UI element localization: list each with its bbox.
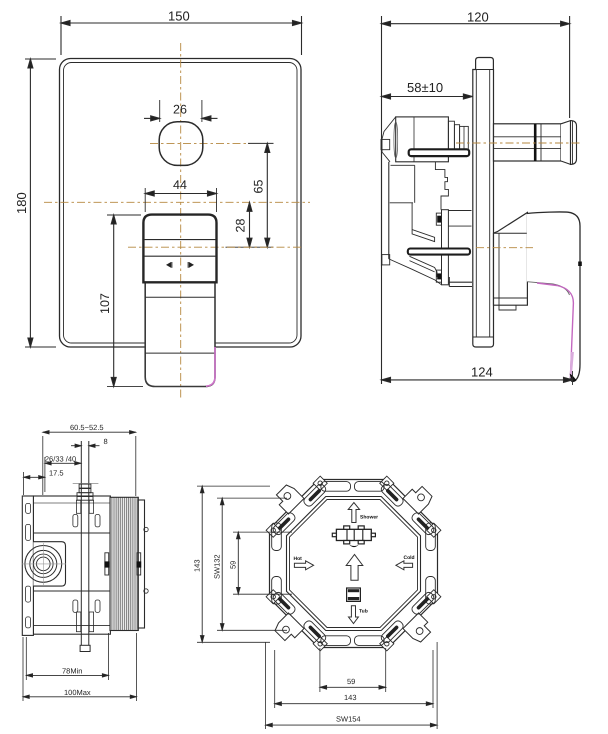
svg-text:60.5~52.5: 60.5~52.5 [70, 423, 104, 432]
svg-text:150: 150 [168, 9, 190, 24]
svg-text:28: 28 [234, 219, 248, 233]
svg-text:58±10: 58±10 [407, 80, 443, 95]
svg-text:100Max: 100Max [64, 688, 91, 697]
svg-text:120: 120 [467, 10, 489, 25]
svg-text:Cold: Cold [404, 555, 415, 561]
svg-text:143: 143 [344, 693, 357, 702]
svg-text:8: 8 [104, 437, 108, 446]
svg-text:Shower: Shower [360, 515, 378, 521]
svg-text:59: 59 [347, 677, 355, 686]
svg-text:26/33 /40: 26/33 /40 [45, 455, 76, 464]
svg-text:143: 143 [193, 559, 202, 572]
svg-text:180: 180 [14, 192, 29, 214]
svg-text:65: 65 [252, 180, 266, 194]
svg-text:124: 124 [471, 364, 493, 379]
svg-text:SW132: SW132 [213, 554, 222, 579]
svg-text:Tub: Tub [359, 609, 368, 615]
svg-text:78Min: 78Min [62, 666, 82, 675]
svg-text:SW154: SW154 [336, 715, 361, 724]
svg-text:107: 107 [98, 293, 112, 314]
svg-text:59: 59 [229, 561, 238, 569]
svg-text:17.5: 17.5 [49, 468, 64, 477]
svg-text:44: 44 [173, 178, 187, 192]
svg-text:26: 26 [173, 103, 187, 117]
svg-text:Hot: Hot [294, 556, 303, 562]
